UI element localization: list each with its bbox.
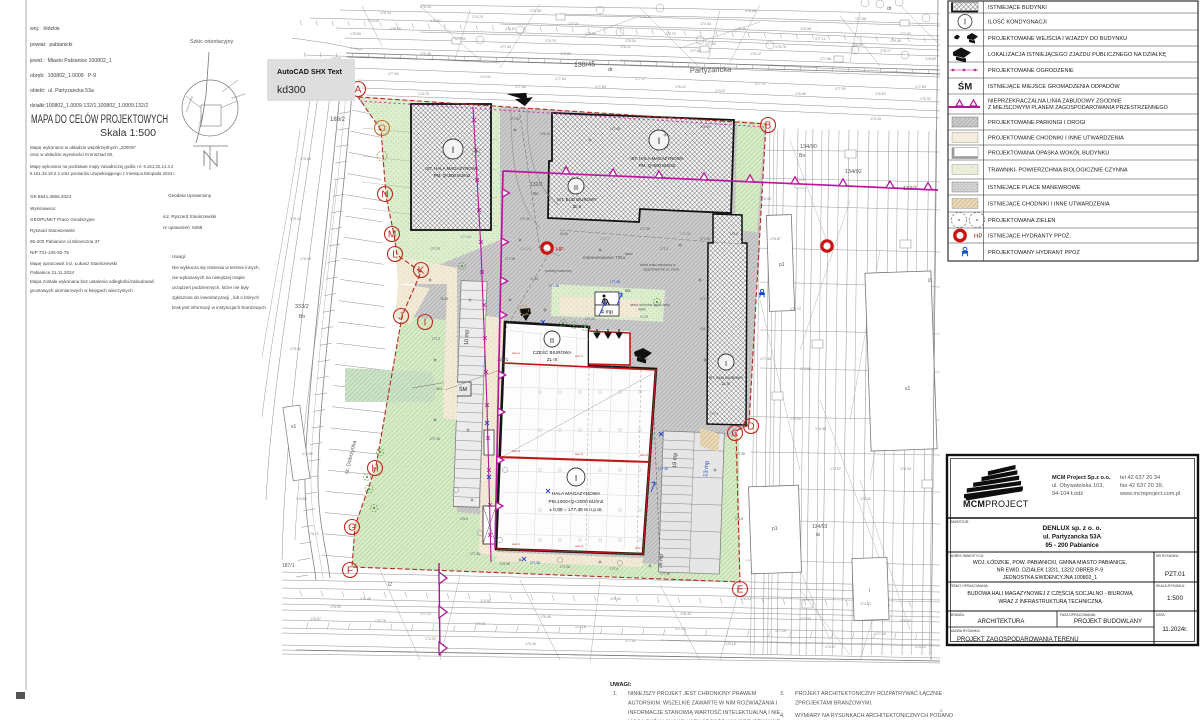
svg-text:177.48: 177.48	[760, 357, 771, 361]
svg-text:175.49: 175.49	[540, 615, 551, 619]
svg-text:Z MIEJSCOWYM PLANEM ZAGOSPODAR: Z MIEJSCOWYM PLANEM ZAGOSPODAROWANIA PRZ…	[988, 105, 1168, 111]
svg-text:175.99: 175.99	[330, 605, 341, 609]
svg-text:inż. Ryszard Staniszewski: inż. Ryszard Staniszewski	[163, 214, 216, 219]
svg-text:zgłoszone do inwentaryzacji ,: zgłoszone do inwentaryzacji , lub o któr…	[172, 295, 260, 300]
svg-text:175.14: 175.14	[380, 11, 391, 15]
svg-text:176.5: 176.5	[460, 517, 468, 521]
svg-text:ADRES INWESTYCJI:: ADRES INWESTYCJI:	[950, 554, 984, 558]
svg-text:REW.2P: REW.2P	[635, 548, 644, 550]
svg-text:s1: s1	[905, 386, 911, 392]
svg-text:NAZWA RYSUNKU:: NAZWA RYSUNKU:	[950, 629, 980, 633]
svg-text:urządzeń podziemnych, które ni: urządzeń podziemnych, które nie były	[172, 285, 250, 290]
svg-text:175.85: 175.85	[390, 27, 401, 31]
svg-text:177.68: 177.68	[855, 17, 866, 21]
svg-text:Pabianice 21.11.2024: Pabianice 21.11.2024	[30, 270, 75, 275]
svg-text:177.83: 177.83	[915, 85, 926, 89]
svg-text:sąsiedztwie linii en. średn.: sąsiedztwie linii en. średn.	[643, 268, 680, 272]
svg-text:PROJEKTOWANE PARKINGI I DROGI: PROJEKTOWANE PARKINGI I DROGI	[988, 120, 1086, 126]
svg-text:177.21: 177.21	[675, 627, 686, 631]
svg-text:176.79: 176.79	[375, 619, 386, 623]
svg-text:177.90: 177.90	[455, 37, 466, 41]
svg-text:4 mp: 4 mp	[601, 310, 613, 316]
svg-text:176.48: 176.48	[360, 597, 371, 601]
svg-text:174.85: 174.85	[800, 367, 811, 371]
svg-text:H: H	[371, 464, 378, 475]
svg-text:N: N	[381, 190, 388, 201]
svg-text:manewrowanie TIRa: manewrowanie TIRa	[583, 255, 625, 260]
svg-text:174.57: 174.57	[830, 467, 841, 471]
svg-text:177.4: 177.4	[610, 567, 618, 571]
svg-text:177.63: 177.63	[875, 632, 886, 636]
svg-text:PZT.01: PZT.01	[1165, 571, 1186, 578]
svg-text:130/45: 130/45	[574, 61, 596, 69]
svg-text:176.92: 176.92	[920, 97, 931, 101]
svg-text:177.35: 177.35	[735, 452, 745, 456]
svg-text:175.20: 175.20	[290, 217, 301, 221]
svg-text:C: C	[731, 429, 738, 440]
svg-text:nie wykazanych na niniejszej m: nie wykazanych na niniejszej mapie	[172, 275, 245, 280]
svg-text:176.96: 176.96	[795, 92, 806, 96]
svg-text:177.44: 177.44	[460, 235, 471, 239]
svg-text:94-104 Łódź: 94-104 Łódź	[1052, 491, 1083, 497]
svg-text:ul. Obywatelska 103,: ul. Obywatelska 103,	[1052, 483, 1104, 489]
svg-text:176.80: 176.80	[296, 497, 307, 501]
svg-text:PROJEKT ZAGOSPODAROWANIA TEREN: PROJEKT ZAGOSPODAROWANIA TERENU	[957, 637, 1079, 643]
svg-text:175.93: 175.93	[610, 597, 621, 601]
svg-text:176.57: 176.57	[310, 617, 321, 621]
svg-text:Bo: Bo	[299, 314, 305, 320]
svg-text:176.18: 176.18	[725, 642, 736, 646]
svg-text:s1: s1	[291, 424, 297, 430]
svg-text:MCM Project Sp.z o.o.: MCM Project Sp.z o.o.	[1052, 475, 1111, 481]
svg-text:TRAWNIKI- POWIERZCHNIA BIOLOGI: TRAWNIKI- POWIERZCHNIA BIOLOGICZNIE CZYN…	[988, 168, 1128, 174]
svg-text:333/2: 333/2	[295, 304, 309, 310]
svg-text:10 mp: 10 mp	[464, 330, 471, 345]
svg-text:176.87: 176.87	[770, 237, 781, 241]
svg-text:176.32: 176.32	[860, 497, 871, 501]
svg-text:I: I	[658, 136, 661, 146]
svg-text:i2: i2	[388, 582, 392, 588]
svg-text:PROJEKTOWANE CHODNIKI I INNE U: PROJEKTOWANE CHODNIKI I INNE UTWARDZENIA	[988, 136, 1124, 142]
svg-text:CZEŚĆ BIUROWA: CZEŚĆ BIUROWA	[533, 348, 573, 355]
svg-text:PROJEKT ARCHITEKTONICZNY ROZPA: PROJEKT ARCHITEKTONICZNY ROZPATRYWAĆ ŁĄC…	[795, 690, 943, 697]
svg-text:ILOŚĆ KONDYGNACJI: ILOŚĆ KONDYGNACJI	[988, 18, 1047, 26]
svg-text:177.32: 177.32	[700, 297, 710, 301]
svg-text:PROJEKTOWANA OPASKA WOKÓŁ BUDY: PROJEKTOWANA OPASKA WOKÓŁ BUDYNKU	[988, 150, 1109, 157]
svg-text:174.18: 174.18	[575, 625, 586, 629]
svg-text:ZL III: ZL III	[547, 357, 557, 362]
svg-text:175.25: 175.25	[520, 247, 531, 251]
svg-text:177.29: 177.29	[775, 629, 786, 633]
svg-text:strefa ochronna ujęcia wody: strefa ochronna ujęcia wody	[630, 303, 670, 307]
svg-text:REW.2P: REW.2P	[512, 544, 521, 546]
svg-text:4x4m: 4x4m	[638, 308, 646, 312]
svg-text:174.48: 174.48	[890, 39, 901, 43]
svg-text:UWAGI:: UWAGI:	[610, 682, 632, 688]
svg-text:ŚM: ŚM	[958, 81, 972, 93]
svg-text:Mapa została wykonana bez usta: Mapa została wykonana bez ustalenia odle…	[30, 279, 155, 284]
svg-text:177.4: 177.4	[710, 412, 718, 416]
svg-text:176.40: 176.40	[680, 612, 691, 616]
svg-text:134/93: 134/93	[812, 524, 828, 530]
svg-text:177.11: 177.11	[815, 37, 825, 41]
svg-text:176.42: 176.42	[700, 327, 710, 331]
svg-text:177.38: 177.38	[470, 552, 480, 556]
svg-text:1:500: 1:500	[1167, 595, 1183, 602]
svg-text:Mapę opracował: inż. Łukasz St: Mapę opracował: inż. Łukasz Staniszewski	[30, 261, 117, 266]
svg-text:ISTNIEJĄCE HYDRANTY PPOŻ.: ISTNIEJĄCE HYDRANTY PPOŻ.	[988, 233, 1071, 240]
svg-text:177.23: 177.23	[420, 612, 431, 616]
svg-text:woj.: łódzkie: woj.: łódzkie	[30, 26, 60, 32]
svg-text:174.44: 174.44	[480, 75, 491, 79]
svg-text:174.58: 174.58	[302, 452, 313, 456]
svg-text:176.8: 176.8	[735, 517, 743, 521]
svg-text:177.18: 177.18	[430, 437, 440, 441]
svg-text:3.: 3.	[780, 691, 785, 697]
svg-text:dr: dr	[887, 6, 892, 12]
svg-text:1.: 1.	[613, 691, 618, 697]
svg-text:IST. BUD BIUROWY: IST. BUD BIUROWY	[709, 376, 744, 380]
svg-text:L: L	[392, 250, 398, 261]
svg-text:www.mcmproject.com.pl: www.mcmproject.com.pl	[1119, 491, 1180, 497]
svg-text:NIEPRZEKRACZALNA LINIA ZABUDOW: NIEPRZEKRACZALNA LINIA ZABUDOWY ZGODNIE	[988, 99, 1122, 105]
svg-text:AutoCAD SHX Text: AutoCAD SHX Text	[277, 67, 343, 76]
svg-text:I: I	[452, 145, 455, 155]
svg-text:LOKALIZACJA ISTNIEJĄCEGO ZJAZD: LOKALIZACJA ISTNIEJĄCEGO ZJAZDU PUBLICZN…	[988, 52, 1166, 58]
svg-text:kd300: kd300	[277, 84, 306, 96]
svg-text:PROJEKT BUDOWLANY: PROJEKT BUDOWLANY	[1074, 619, 1142, 625]
svg-text:4.: 4.	[780, 713, 785, 719]
svg-text:ISTNIEJĄCE PLACE MANEWROWE: ISTNIEJĄCE PLACE MANEWROWE	[988, 185, 1081, 191]
svg-text:GEOPUNKT Prace Geodezyjne: GEOPUNKT Prace Geodezyjne	[30, 217, 95, 222]
svg-text:JEDNOSTKA EWIDENCYJNA 100802_1: JEDNOSTKA EWIDENCYJNA 100802_1	[1003, 575, 1097, 581]
svg-text:NR EWID. DZIAŁEK 132/1, 132/2: NR EWID. DZIAŁEK 132/1, 132/2 OBRĘB P-9	[997, 568, 1103, 574]
svg-text:132/2: 132/2	[530, 182, 543, 188]
svg-text:175.17: 175.17	[880, 49, 891, 53]
svg-text:D: D	[747, 422, 754, 433]
svg-text:177.38: 177.38	[549, 284, 559, 288]
svg-text:NINIEJSZY PROJEKT JEST CHRONIO: NINIEJSZY PROJEKT JEST CHRONIONY PRAWEM	[628, 691, 757, 697]
svg-text:AUTORSKIM. WSZELKIE ZAWARTE W: AUTORSKIM. WSZELKIE ZAWARTE W NIM ROZWIĄ…	[628, 701, 777, 707]
svg-text:175.44: 175.44	[540, 132, 550, 136]
svg-text:Szkic orientacyjny: Szkic orientacyjny	[190, 39, 233, 45]
svg-text:powiat: pabianicki: powiat: pabianicki	[30, 42, 72, 48]
svg-text:177.35: 177.35	[640, 227, 650, 231]
svg-text:oraz w układzie wysokości Kron: oraz w układzie wysokości Kronsztad 60.	[30, 152, 114, 157]
svg-text:IST. HALA MAGAZYNOWA: IST. HALA MAGAZYNOWA	[425, 166, 478, 171]
svg-text:177.3: 177.3	[660, 247, 668, 251]
svg-text:176.72: 176.72	[790, 307, 801, 311]
svg-text:Nie wyklucza się istnienia w t: Nie wyklucza się istnienia w terenie inn…	[172, 265, 260, 270]
svg-text:176.10: 176.10	[420, 5, 431, 9]
svg-text:174.77: 174.77	[600, 237, 611, 241]
svg-text:obręb: 100802_1.0009 P-9: obręb: 100802_1.0009 P-9	[30, 73, 96, 79]
svg-text:K: K	[418, 266, 425, 277]
svg-text:177.45: 177.45	[520, 217, 530, 221]
svg-text:PROJEKTOWANE WEJŚCIA I WJAZDY: PROJEKTOWANE WEJŚCIA I WJAZDY DO BUDYNKU	[988, 34, 1127, 42]
svg-text:17.35: 17.35	[530, 277, 538, 281]
svg-text:177.43: 177.43	[500, 45, 511, 49]
svg-text:HALA MAGAZYNOWA: HALA MAGAZYNOWA	[552, 491, 601, 497]
svg-text:Wykonawca:: Wykonawca:	[30, 206, 56, 211]
svg-text:176.98: 176.98	[500, 562, 510, 566]
svg-text:175.76: 175.76	[775, 45, 786, 49]
svg-text:PROJEKTOWANE OGRODZENIE: PROJEKTOWANE OGRODZENIE	[988, 68, 1074, 74]
svg-text:ZPROJEKTAMI BRANŻOWYMI.: ZPROJEKTAMI BRANŻOWYMI.	[795, 700, 872, 707]
svg-text:J: J	[399, 312, 404, 323]
svg-text:p1: p1	[772, 526, 778, 532]
svg-text:174.53: 174.53	[700, 22, 711, 26]
svg-text:obiekt: ul. Partyzancka 53a: obiekt: ul. Partyzancka 53a	[30, 88, 94, 94]
svg-text:176.22: 176.22	[675, 85, 686, 89]
svg-text:177.38: 177.38	[530, 561, 540, 565]
svg-text:PROJEKTOWANA ZIELEŃ: PROJEKTOWANA ZIELEŃ	[988, 217, 1055, 224]
svg-text:176.29: 176.29	[640, 15, 651, 19]
svg-text:WRAZ Z INFRASTRUKTURĄ TECHNICZ: WRAZ Z INFRASTRUKTURĄ TECHNICZNĄ	[998, 599, 1102, 605]
svg-text:INWESTOR:: INWESTOR:	[950, 520, 969, 524]
svg-text:ZL II: ZL II	[573, 204, 582, 209]
svg-text:HP: HP	[556, 247, 564, 253]
svg-text:26 mp: 26 mp	[658, 554, 665, 568]
svg-text:i3: i3	[928, 278, 932, 284]
svg-text:brak jest informacji w instytu: brak jest informacji w instytucjach bran…	[172, 305, 267, 310]
svg-text:I: I	[725, 359, 727, 368]
svg-text:176.33: 176.33	[740, 597, 751, 601]
svg-text:176.74: 176.74	[308, 532, 319, 536]
svg-text:Mapę wykonano w układzie współ: Mapę wykonano w układzie współrzędnych „…	[30, 145, 137, 150]
svg-text:Mapę wykonano na podstawie map: Mapę wykonano na podstawie mapy zasadnic…	[30, 164, 174, 169]
svg-text:ISTNIEJĄCE BUDYNKI: ISTNIEJĄCE BUDYNKI	[988, 5, 1047, 11]
svg-text:A: A	[355, 85, 362, 96]
svg-text:174.15: 174.15	[915, 645, 926, 649]
svg-text:174.96: 174.96	[815, 427, 826, 431]
svg-text:BUDOWA HALI MAGAZYNOWEJ Z CZĘŚ: BUDOWA HALI MAGAZYNOWEJ Z CZĘŚCIĄ SOCJAL…	[967, 589, 1133, 597]
svg-text:174.45: 174.45	[368, 19, 379, 23]
svg-text:177.38: 177.38	[505, 257, 515, 261]
svg-text:177.88: 177.88	[820, 57, 831, 61]
svg-text:176.56: 176.56	[745, 9, 756, 13]
svg-text:175.48: 175.48	[420, 52, 431, 56]
svg-text:177.90: 177.90	[835, 87, 846, 91]
svg-text:19 mp: 19 mp	[672, 453, 679, 469]
svg-text:zjazd: zjazd	[625, 252, 633, 256]
svg-text:6.161.32.19.2.2 oraz pomiarów: 6.161.32.19.2.2 oraz pomiarów uzupełniaj…	[30, 171, 176, 176]
svg-text:175.45: 175.45	[870, 117, 881, 121]
svg-text:GK.6641.3656.2024: GK.6641.3656.2024	[30, 194, 72, 199]
svg-text:± 0,00 = 177,40 m n.p.m.: ± 0,00 = 177,40 m n.p.m.	[549, 507, 602, 513]
svg-text:177.84: 177.84	[690, 49, 701, 53]
svg-text:04.06: 04.06	[560, 232, 568, 236]
svg-text:dr: dr	[608, 67, 613, 73]
svg-text:188/2: 188/2	[330, 117, 346, 123]
svg-text:REW.2P: REW.2P	[575, 546, 584, 548]
svg-text:176.80: 176.80	[560, 52, 571, 56]
svg-text:174.23: 174.23	[860, 602, 871, 606]
svg-text:II: II	[574, 183, 578, 192]
svg-text:175.91: 175.91	[475, 622, 486, 626]
svg-text:95-200 Pabianice ul.Słoneczna: 95-200 Pabianice ul.Słoneczna 37	[30, 239, 100, 244]
svg-text:PROJEKTOWANY HYDRANT PPOŻ: PROJEKTOWANY HYDRANT PPOŻ	[988, 249, 1080, 256]
svg-text:177.82: 177.82	[510, 117, 520, 121]
svg-text:HP: HP	[974, 234, 982, 240]
svg-text:174.47: 174.47	[825, 645, 836, 649]
svg-text:nr uprawnień: 6268: nr uprawnień: 6268	[163, 225, 203, 230]
svg-text:II: II	[550, 336, 554, 345]
svg-text:ISTNIEJĄCE CHODNIKI I INNE UTW: ISTNIEJĄCE CHODNIKI I INNE UTWARDZENIA	[988, 202, 1110, 208]
svg-text:175.46: 175.46	[700, 125, 710, 129]
svg-text:174.23: 174.23	[472, 15, 483, 19]
svg-text:INFORMACJE STANOWIĄ WARTOŚĆ IN: INFORMACJE STANOWIĄ WARTOŚĆ INTELEKTUALN…	[628, 708, 781, 716]
svg-text:p1: p1	[779, 262, 785, 268]
svg-text:IST. HALA MAGAZYNOWA: IST. HALA MAGAZYNOWA	[630, 156, 683, 161]
svg-text:Geodeta Uprawniony: Geodeta Uprawniony	[168, 193, 212, 198]
svg-text:TEMAT OPRACOWANIA:: TEMAT OPRACOWANIA:	[950, 584, 989, 588]
svg-text:174.30: 174.30	[852, 43, 863, 47]
svg-text:i: i	[869, 588, 870, 594]
svg-text:176.80: 176.80	[585, 32, 596, 36]
svg-text:IST. BUD BIUROWY: IST. BUD BIUROWY	[557, 197, 597, 202]
svg-text:REW.2P: REW.2P	[575, 454, 584, 456]
svg-text:F: F	[347, 566, 353, 577]
svg-text:Partyzancka: Partyzancka	[690, 65, 732, 75]
svg-text:177.84: 177.84	[388, 72, 399, 76]
svg-text:177.91: 177.91	[625, 639, 636, 643]
svg-text:Ba: Ba	[625, 288, 631, 293]
svg-text:PM. Q<500 MJ/m2: PM. Q<500 MJ/m2	[434, 173, 471, 178]
svg-text:174.27: 174.27	[715, 89, 726, 93]
svg-text:174.93: 174.93	[425, 637, 436, 641]
svg-text:174.70: 174.70	[545, 39, 556, 43]
svg-text:175.34: 175.34	[625, 39, 636, 43]
svg-text:ARCHITEKTURA: ARCHITEKTURA	[978, 619, 1025, 625]
svg-text:Skala 1:500: Skala 1:500	[100, 128, 156, 139]
svg-text:17.22: 17.22	[640, 315, 648, 319]
svg-text:B: B	[765, 121, 772, 132]
svg-text:176.12: 176.12	[750, 52, 761, 56]
svg-text:175.57: 175.57	[430, 19, 441, 23]
svg-text:176.78: 176.78	[418, 92, 429, 96]
svg-text:176.93: 176.93	[300, 257, 311, 261]
svg-text:jewid.: Miasto Pabianice 1008: jewid.: Miasto Pabianice 100802_1	[29, 58, 112, 64]
svg-text:działki:100802_1.0009.132/1,10: działki:100802_1.0009.132/1,100802_1.000…	[30, 103, 148, 109]
svg-text:177.92: 177.92	[900, 32, 911, 36]
svg-text:177.27: 177.27	[635, 77, 646, 81]
svg-text:I: I	[424, 318, 427, 329]
svg-text:11.2024r.: 11.2024r.	[1162, 626, 1188, 633]
svg-text:BRANŻA:: BRANŻA:	[950, 612, 965, 617]
svg-text:WYMIARY NA RYSUNKACH ARCHITEKT: WYMIARY NA RYSUNKACH ARCHITEKTONICZNYCH …	[795, 713, 953, 719]
svg-text:PM,1000<Q<2000 MJ/m2: PM,1000<Q<2000 MJ/m2	[549, 499, 604, 505]
svg-text:REW.2P: REW.2P	[512, 451, 521, 453]
svg-text:176.46: 176.46	[525, 642, 536, 646]
svg-text:NR RYSUNKU:: NR RYSUNKU:	[1156, 554, 1179, 558]
svg-text:177.36: 177.36	[660, 572, 670, 576]
svg-text:134/92: 134/92	[845, 169, 862, 175]
svg-text:Ryszard Staniszewski: Ryszard Staniszewski	[30, 228, 75, 233]
svg-text:FAZA OPRACOWANIA:: FAZA OPRACOWANIA:	[1060, 613, 1096, 617]
svg-text:177.93: 177.93	[800, 617, 811, 621]
svg-text:134/90: 134/90	[800, 144, 817, 150]
svg-text:ŚM: ŚM	[459, 385, 468, 393]
svg-text:REW.2P: REW.2P	[575, 356, 584, 358]
svg-text:175.50: 175.50	[680, 232, 691, 236]
svg-text:fax 42 637 20 39,: fax 42 637 20 39,	[1120, 483, 1164, 489]
svg-text:177.68: 177.68	[610, 127, 620, 131]
svg-text:I: I	[964, 18, 966, 27]
svg-text:177.79: 177.79	[665, 32, 676, 36]
svg-text:I: I	[575, 473, 577, 483]
svg-text:177.37: 177.37	[755, 82, 766, 86]
svg-text:174.87: 174.87	[505, 27, 516, 31]
svg-text:177.22: 177.22	[585, 317, 595, 321]
svg-text:NIP 731-105-92-75: NIP 731-105-92-75	[30, 250, 69, 255]
svg-text:O: O	[378, 124, 386, 135]
svg-text:176.63: 176.63	[875, 92, 886, 96]
svg-text:177.64: 177.64	[555, 77, 566, 81]
svg-text:177.45: 177.45	[700, 237, 710, 241]
svg-text:WOJ. ŁÓDZKIE, POW. PABIANICKI,: WOJ. ŁÓDZKIE, POW. PABIANICKI, GMINA MIA…	[973, 559, 1127, 566]
svg-text:SKALA RYSUNKU:: SKALA RYSUNKU:	[1156, 584, 1185, 588]
svg-text:DENLUX sp. z o. o.: DENLUX sp. z o. o.	[1043, 525, 1102, 532]
svg-text:176.11: 176.11	[620, 45, 631, 49]
svg-text:Bo: Bo	[533, 191, 539, 196]
svg-text:Bi: Bi	[816, 532, 820, 537]
svg-text:ISTNIEJĄCE MIEJSCE GROMADZENIA: ISTNIEJĄCE MIEJSCE GROMADZENIA ODPADÓW	[988, 83, 1120, 90]
svg-text:G: G	[348, 523, 356, 534]
svg-text:177.2: 177.2	[432, 337, 440, 341]
svg-text:parking rowerowy: parking rowerowy	[545, 269, 572, 273]
svg-text:176.69: 176.69	[925, 57, 936, 61]
svg-text:REW.2P: REW.2P	[640, 455, 649, 457]
svg-text:tel 42 637 20 34: tel 42 637 20 34	[1120, 475, 1160, 481]
svg-text:175.53: 175.53	[350, 32, 361, 36]
svg-text:DATA:: DATA:	[1156, 613, 1166, 617]
svg-text:174.82: 174.82	[480, 599, 491, 603]
svg-text:176.33: 176.33	[900, 467, 911, 471]
svg-text:175.39: 175.39	[735, 27, 746, 31]
svg-text:177.83: 177.83	[595, 85, 606, 89]
svg-text:REW.2P: REW.2P	[512, 353, 521, 355]
svg-text:175.82: 175.82	[290, 347, 301, 351]
svg-text:187/1: 187/1	[282, 563, 295, 569]
svg-text:174.35: 174.35	[530, 9, 541, 13]
svg-text:strefa braku zabudowy w: strefa braku zabudowy w	[640, 263, 676, 267]
svg-text:E: E	[737, 585, 744, 596]
svg-text:176.52: 176.52	[900, 619, 911, 623]
svg-text:177.60: 177.60	[705, 42, 716, 46]
svg-text:176.90: 176.90	[790, 417, 801, 421]
svg-text:MAPA DO CELÓW PROJEKTOWYCH: MAPA DO CELÓW PROJEKTOWYCH	[31, 113, 168, 126]
svg-text:MCMPROJECT: MCMPROJECT	[963, 499, 1029, 509]
svg-text:PM. Q<500 MJ/m2: PM. Q<500 MJ/m2	[639, 163, 676, 168]
svg-text:ZL III: ZL III	[722, 382, 731, 386]
svg-text:175.66: 175.66	[300, 157, 311, 161]
svg-text:175.58: 175.58	[800, 27, 811, 31]
svg-text:M: M	[388, 230, 396, 241]
svg-text:177.38: 177.38	[560, 565, 570, 569]
svg-text:Uwagi:: Uwagi:	[172, 254, 186, 259]
svg-text:177.86: 177.86	[515, 85, 526, 89]
svg-text:177.38: 177.38	[610, 280, 620, 284]
svg-text:95 - 200 Pabianice: 95 - 200 Pabianice	[1045, 542, 1099, 549]
svg-text:175.8: 175.8	[730, 232, 738, 236]
svg-text:177.38: 177.38	[658, 467, 668, 471]
svg-text:Bo: Bo	[799, 153, 805, 159]
svg-text:ul. Partyzancka 53A: ul. Partyzancka 53A	[1043, 534, 1102, 541]
svg-text:76.48: 76.48	[440, 297, 448, 301]
svg-text:177.23: 177.23	[430, 247, 440, 251]
svg-text:177.47: 177.47	[568, 22, 579, 26]
